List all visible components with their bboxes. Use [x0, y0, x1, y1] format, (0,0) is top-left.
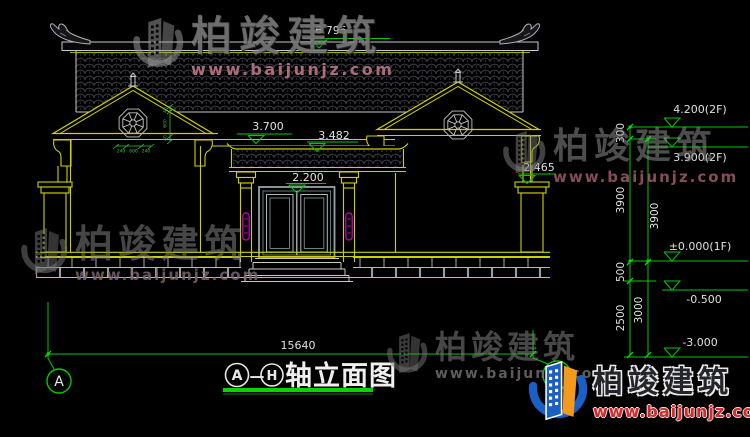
corbel-left-wing-left — [54, 140, 71, 166]
level-right-1: 4.200(2F) — [673, 103, 726, 116]
couplet-left — [243, 213, 249, 240]
level-right-3: ±0.000(1F) — [669, 240, 732, 253]
level-right-2: 3.900(2F) — [673, 151, 726, 164]
chain-inner-3000: 3000 — [633, 297, 645, 324]
right-dim-chains: 300 3900 500 2500 3900 3000 — [615, 123, 661, 358]
brand-logo-icon — [527, 359, 589, 427]
gate-pillar-right — [515, 182, 549, 252]
couplet-right — [346, 213, 352, 240]
title-axis-from: A — [232, 368, 243, 384]
bagua-hdim-1: 240 — [117, 149, 126, 155]
level-eave-label: 3.700 — [252, 120, 284, 133]
bagua-hdim-2: 600 — [129, 149, 138, 155]
plinth-base — [36, 252, 550, 277]
level-canopy-label: 3.482 — [318, 129, 350, 142]
roof-ridge — [50, 24, 539, 53]
brand-name: 柏竣建筑 — [593, 368, 750, 398]
level-door-label: 2.200 — [292, 171, 324, 184]
bagua-vdim-2: 600 — [163, 119, 169, 128]
drawing-title: A — H 轴立面图 — [223, 360, 397, 394]
level-right-5: -3.000 — [682, 336, 717, 349]
gate-pillar-left — [38, 182, 72, 252]
level-right-4: -0.500 — [686, 293, 721, 306]
chain-outer-500: 500 — [615, 262, 627, 282]
entry-canopy — [227, 144, 408, 174]
bagua-hdim-3: 240 — [142, 149, 151, 155]
corbel-left-wing-right — [195, 140, 212, 166]
entry-steps — [241, 263, 353, 282]
bagua-vdim-3: 40 — [163, 135, 169, 141]
bagua-vdim-1: 40 — [163, 107, 169, 113]
ridge-ornament-left — [50, 24, 90, 44]
chain-outer-300: 300 — [615, 123, 627, 143]
chain-outer-2500: 2500 — [615, 305, 627, 332]
title-label: 轴立面图 — [285, 360, 397, 392]
axis-bubble-a: A — [47, 358, 71, 393]
overall-width-label: 15640 — [281, 339, 316, 352]
ridge-ornament-right — [500, 24, 540, 44]
title-axis-to: H — [267, 369, 278, 384]
brand-logo: 柏竣建筑 www.baijunjz.com — [527, 359, 750, 427]
cad-elevation-screenshot: 6.795 3.700 3.482 2.200 2.465 40 600 40 … — [0, 0, 750, 437]
chain-inner-3900: 3900 — [649, 203, 661, 230]
title-underline — [223, 388, 373, 392]
entry-door — [255, 187, 339, 259]
level-pier-label: 2.465 — [523, 161, 555, 174]
brick-band-left — [36, 257, 241, 278]
brick-band-right — [353, 257, 550, 278]
overall-dimension: 15640 — [45, 302, 536, 358]
axis-bubble-a-label: A — [54, 374, 64, 390]
chain-outer-3900: 3900 — [615, 187, 627, 214]
level-ridge-label: 6.795 — [315, 24, 347, 37]
brand-url: www.baijunjz.com — [593, 402, 750, 421]
